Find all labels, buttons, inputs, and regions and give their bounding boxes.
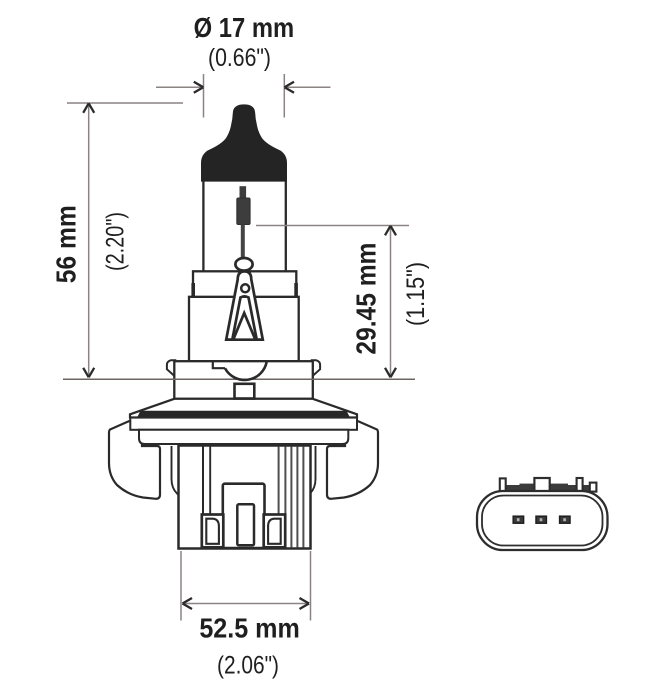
svg-text:(1.15"): (1.15") [402, 262, 430, 326]
svg-text:52.5 mm: 52.5 mm [199, 613, 300, 644]
svg-text:(2.20"): (2.20") [102, 212, 130, 271]
svg-text:56 mm: 56 mm [51, 205, 82, 283]
svg-text:29.45 mm: 29.45 mm [351, 243, 382, 355]
svg-text:Ø 17 mm: Ø 17 mm [194, 12, 295, 43]
svg-text:(2.06"): (2.06") [217, 652, 279, 680]
svg-text:(0.66"): (0.66") [208, 44, 271, 72]
